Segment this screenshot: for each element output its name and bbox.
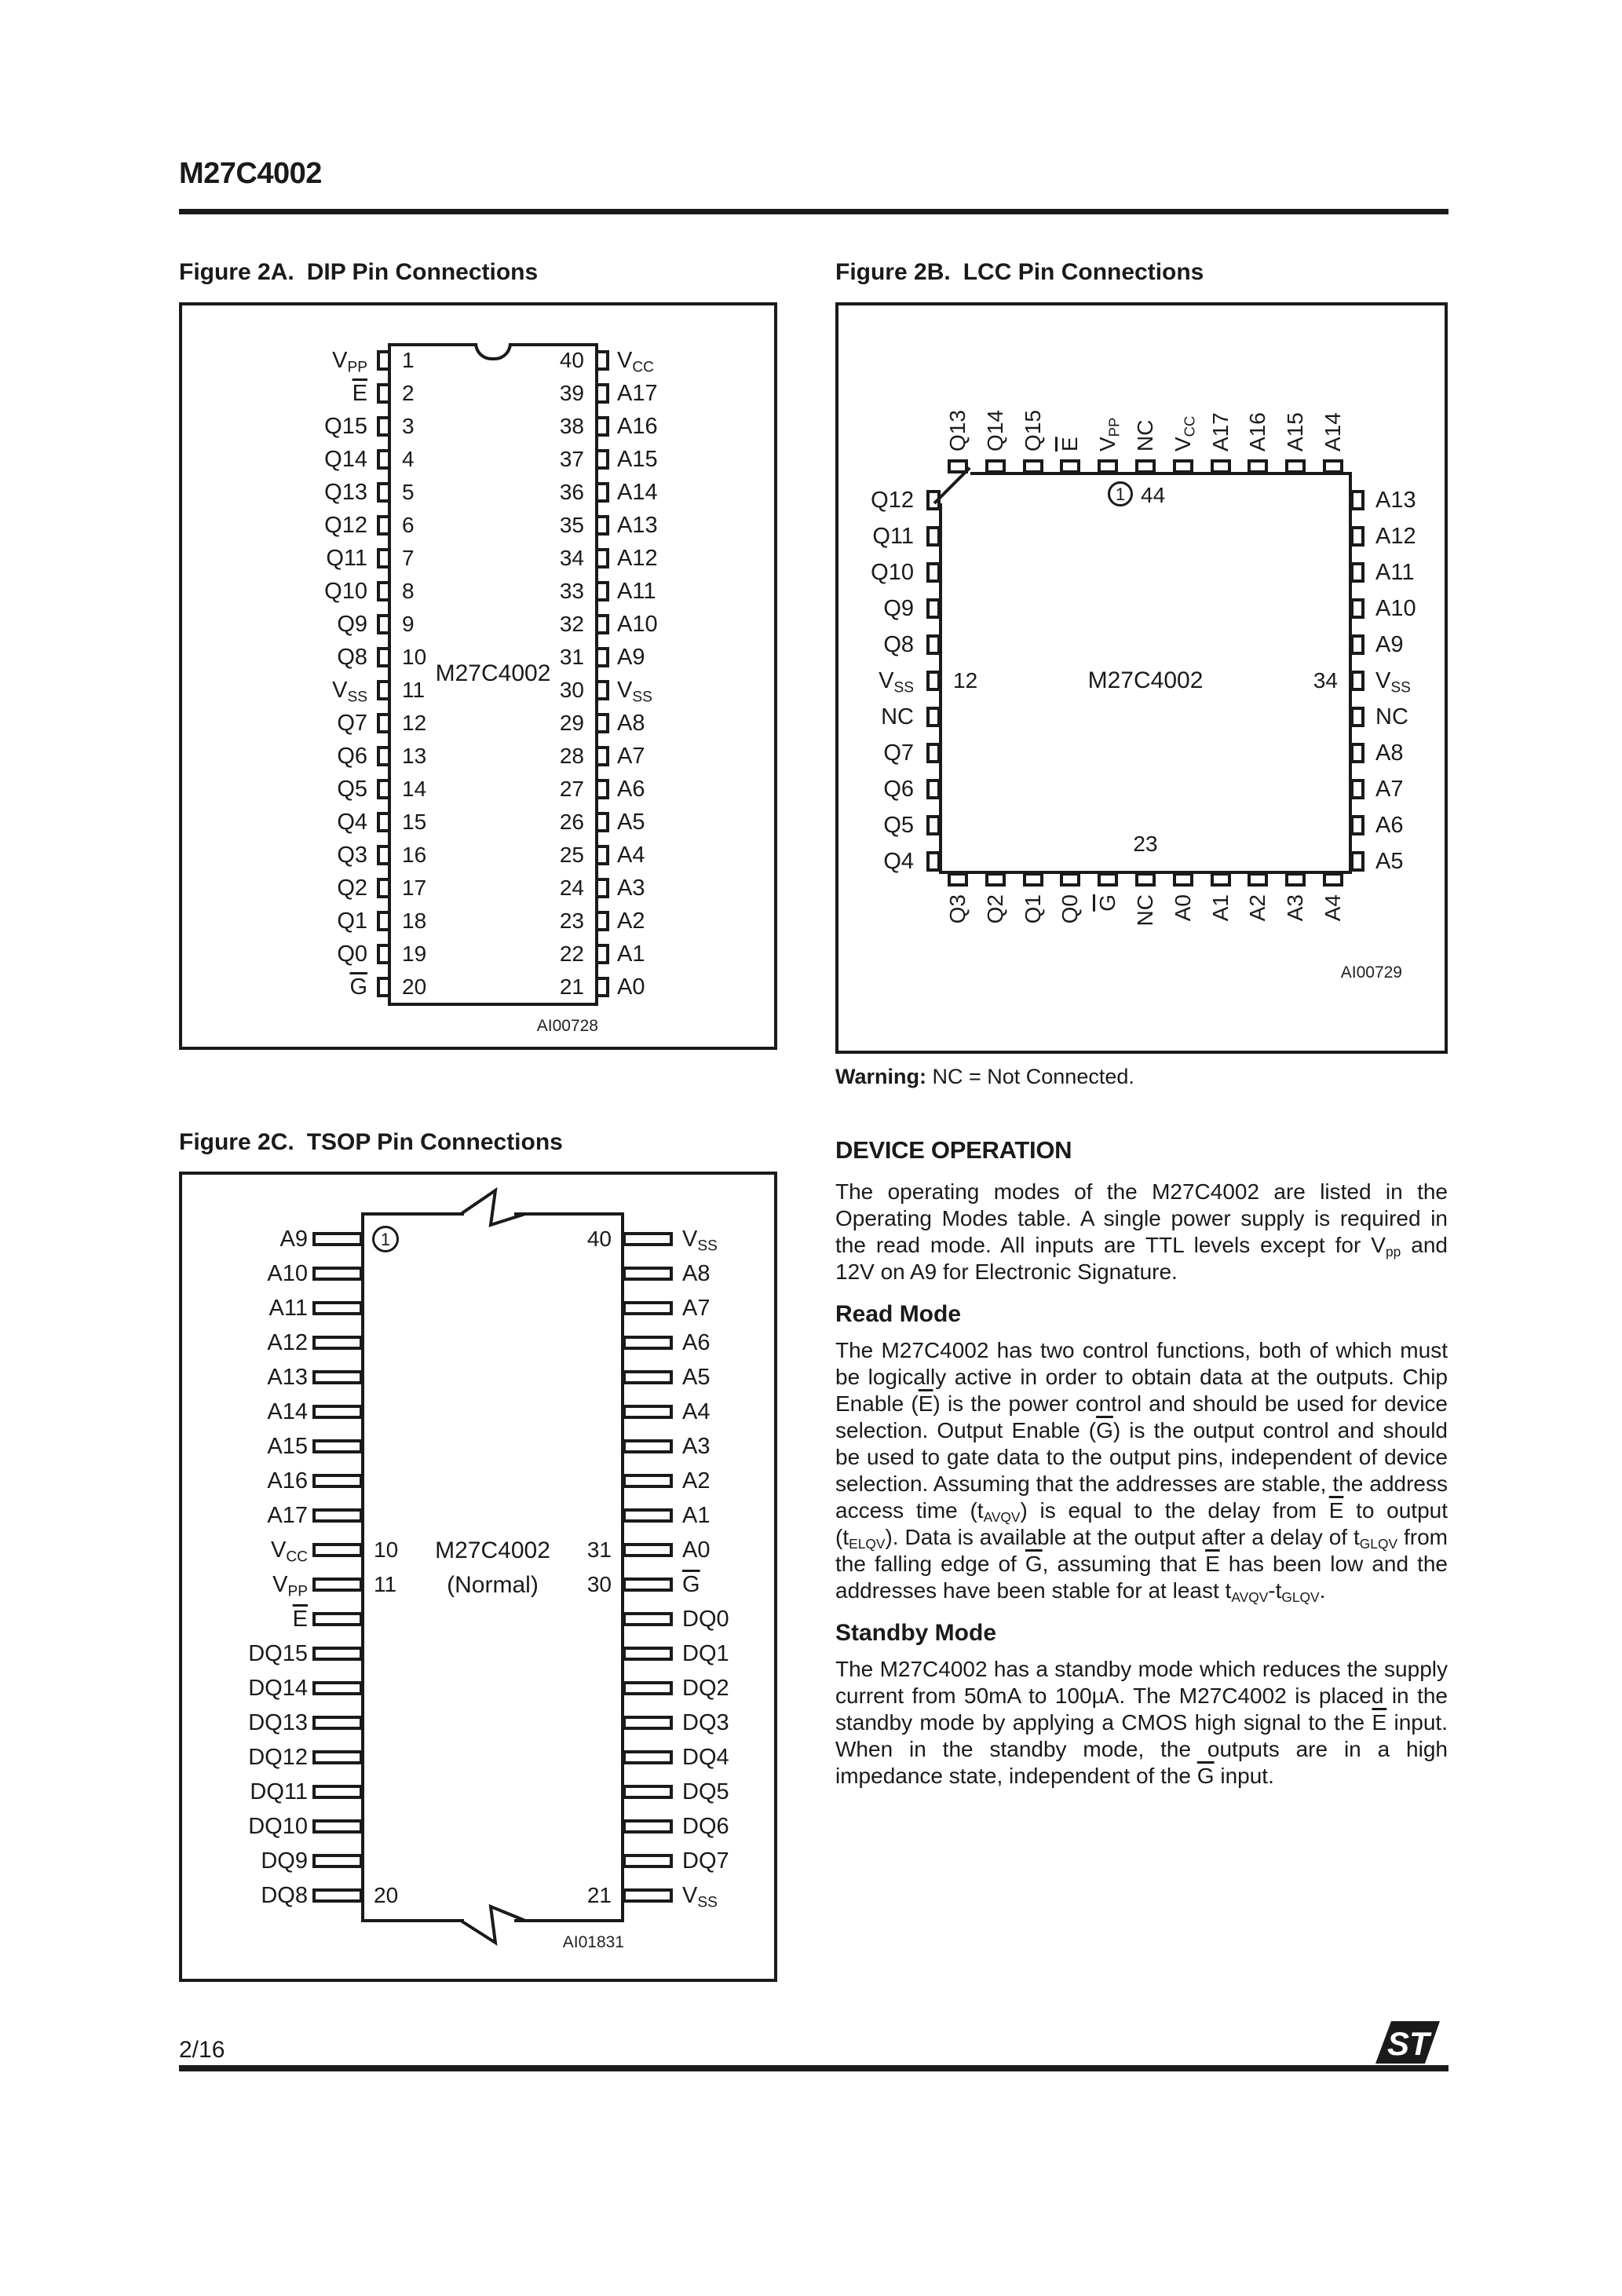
- pin-label: A8: [1375, 740, 1403, 766]
- pin-stub: [1350, 815, 1364, 835]
- figure-2a-caption: Figure 2A.DIP Pin Connections: [179, 259, 538, 286]
- pin-label: Q9: [188, 612, 367, 637]
- pin-stub: [377, 977, 391, 997]
- pin-number: 33: [524, 579, 584, 604]
- figure-2a-dip-diagram: VPP140VCCE239A17Q15338A16Q14437A15Q13536…: [179, 302, 777, 1050]
- pin1-marker: 1: [1108, 481, 1133, 506]
- pin-stub: [1285, 459, 1306, 473]
- pin-number: 1: [402, 348, 415, 373]
- page-number: 2/16: [179, 2037, 225, 2064]
- pin-stub: [312, 1785, 363, 1799]
- pin-label: NC: [845, 704, 914, 729]
- pin-label: DQ15: [188, 1641, 308, 1666]
- pin-label: A17: [188, 1503, 308, 1528]
- pin-stub: [926, 598, 941, 619]
- figure-2c-tsop-diagram: A9VSS140A10A8A11A7A12A6A13A5A14A4A15A3A1…: [179, 1172, 777, 1982]
- pin-stub: [1285, 872, 1306, 887]
- pin-label: Q0: [188, 941, 367, 967]
- pin-stub: [595, 614, 609, 634]
- pin-stub: [595, 515, 609, 536]
- pin-number: 23: [939, 832, 1352, 857]
- pin-number: 20: [402, 974, 426, 1000]
- pin-label: A2: [1248, 894, 1267, 981]
- pin-label: Q15: [188, 414, 367, 439]
- pin-number: 20: [374, 1883, 398, 1908]
- pin-number: 15: [402, 810, 426, 835]
- pin-label: Q11: [188, 546, 367, 571]
- pin-stub: [595, 977, 609, 997]
- pin-label: A15: [188, 1434, 308, 1459]
- pin-label: A14: [1324, 365, 1343, 452]
- pin-label: DQ1: [682, 1641, 729, 1666]
- pin-label: A15: [1286, 365, 1305, 452]
- pin-label: A4: [617, 843, 645, 868]
- pin-stub: [312, 1750, 363, 1764]
- pin-label: A3: [682, 1434, 710, 1459]
- pin-stub: [1248, 459, 1268, 473]
- tsop-chip-body: [361, 1212, 624, 1922]
- pin-label: DQ9: [188, 1848, 308, 1874]
- pin-stub: [377, 383, 391, 404]
- pin-label: DQ3: [682, 1710, 729, 1735]
- pin-number: 44: [1141, 483, 1165, 508]
- device-operation-heading: DEVICE OPERATION: [835, 1136, 1448, 1164]
- pin-number: 4: [402, 447, 415, 472]
- pin-number: 14: [402, 777, 426, 802]
- datasheet-page: M27C4002 Figure 2A.DIP Pin Connections F…: [0, 0, 1622, 2296]
- pin-stub: [312, 1854, 363, 1868]
- pin-label: Q10: [188, 579, 367, 604]
- pin-stub: [312, 1508, 363, 1523]
- pin-stub: [623, 1888, 673, 1903]
- pin-number: 32: [524, 612, 584, 637]
- pin-label: NC: [1136, 365, 1155, 452]
- pin-label: Q4: [845, 849, 914, 874]
- pin-label: VCC: [617, 348, 654, 373]
- pin-stub: [1350, 671, 1364, 691]
- pin-stub: [1135, 459, 1156, 473]
- pin-stub: [377, 548, 391, 569]
- pin-label: A6: [617, 777, 645, 802]
- pin-stub: [377, 515, 391, 536]
- pin-stub: [595, 449, 609, 470]
- pin-stub: [377, 614, 391, 634]
- pin-stub: [985, 872, 1006, 887]
- pin-stub: [595, 482, 609, 503]
- pin-stub: [377, 944, 391, 964]
- chip-label: M27C4002: [939, 667, 1352, 694]
- pin-stub: [1350, 743, 1364, 763]
- figure-code: AI00728: [388, 1017, 598, 1036]
- pin-stub: [595, 845, 609, 865]
- pin-label: DQ13: [188, 1710, 308, 1735]
- pin-stub: [1350, 526, 1364, 547]
- pin-stub: [1350, 634, 1364, 655]
- pin-label: A12: [188, 1330, 308, 1355]
- pin-label: A11: [188, 1296, 308, 1321]
- figure-code: AI00729: [1341, 963, 1402, 982]
- standby-mode-heading: Standby Mode: [835, 1620, 1448, 1647]
- pin-label: DQ0: [682, 1607, 729, 1632]
- pin-stub: [377, 779, 391, 799]
- pin-stub: [377, 416, 391, 437]
- pin-label: G: [188, 974, 367, 1000]
- pin-stub: [1173, 459, 1193, 473]
- pin-stub: [623, 1681, 673, 1695]
- figure-2b-caption-title: LCC Pin Connections: [963, 259, 1204, 285]
- pin-stub: [1098, 459, 1118, 473]
- pin-stub: [948, 872, 968, 887]
- pin-label: A5: [1375, 849, 1403, 874]
- pin-label: E: [1061, 365, 1080, 452]
- pin-label: A8: [682, 1261, 710, 1286]
- pin-stub: [377, 911, 391, 931]
- pin-stub: [595, 878, 609, 898]
- pin-number: 18: [402, 909, 426, 934]
- pin-label: A4: [682, 1399, 710, 1424]
- pin-stub: [377, 350, 391, 371]
- pin-stub: [312, 1647, 363, 1661]
- pin-number: 2: [402, 381, 415, 406]
- pin-stub: [595, 746, 609, 766]
- pin-label: Q7: [188, 711, 367, 736]
- pin-label: A16: [617, 414, 658, 439]
- pin-label: A12: [1375, 524, 1416, 549]
- pin-stub: [926, 851, 941, 872]
- st-logo-icon: ST: [1375, 2020, 1440, 2065]
- pin-number: 36: [524, 480, 584, 505]
- pin-label: DQ8: [188, 1883, 308, 1908]
- pin-number: 5: [402, 480, 415, 505]
- pin1-marker: 1: [372, 1226, 399, 1252]
- pin-label: Q5: [188, 777, 367, 802]
- pin-label: A7: [1375, 777, 1403, 802]
- pin-number: 3: [402, 414, 415, 439]
- pin-label: A1: [617, 941, 645, 967]
- pin-label: Q11: [845, 524, 914, 549]
- pin-stub: [312, 1267, 363, 1281]
- pin-label: A4: [1324, 894, 1343, 981]
- pin-stub: [1060, 872, 1080, 887]
- pin-number: 26: [524, 810, 584, 835]
- pin-label: Q1: [1024, 894, 1043, 981]
- pin-label: A11: [617, 579, 656, 604]
- pin-stub: [1023, 872, 1043, 887]
- pin-label: Q12: [845, 488, 914, 513]
- pin-stub: [1323, 459, 1343, 473]
- pin-stub: [623, 1474, 673, 1488]
- pin-stub: [1173, 872, 1193, 887]
- pin-stub: [1350, 707, 1364, 727]
- pin-label: A17: [617, 381, 658, 406]
- pin-number: 13: [402, 744, 426, 769]
- pin-label: A9: [188, 1227, 308, 1252]
- pin-label: VSS: [682, 1883, 718, 1908]
- pin-stub: [926, 815, 941, 835]
- pin-number: 8: [402, 579, 415, 604]
- pin-stub: [595, 350, 609, 371]
- pin-label: DQ5: [682, 1779, 729, 1804]
- pin-stub: [1350, 779, 1364, 799]
- pin-label: NC: [1136, 894, 1155, 981]
- standby-mode-paragraph: The M27C4002 has a standby mode which re…: [835, 1656, 1448, 1790]
- read-mode-heading: Read Mode: [835, 1301, 1448, 1328]
- pin-label: A9: [617, 645, 645, 670]
- pin-label: A13: [617, 513, 658, 538]
- pin-number: 37: [524, 447, 584, 472]
- pin-stub: [623, 1439, 673, 1453]
- pin-label: VSS: [1375, 668, 1411, 693]
- pin-stub: [312, 1405, 363, 1419]
- pin-stub: [1350, 598, 1364, 619]
- pin-label: A10: [188, 1261, 308, 1286]
- pin-label: A13: [188, 1365, 308, 1390]
- pin-label: A2: [617, 909, 645, 934]
- pin-label: DQ11: [188, 1779, 308, 1804]
- pin-number: 28: [524, 744, 584, 769]
- pin-label: Q3: [188, 843, 367, 868]
- device-operation-section: DEVICE OPERATION The operating modes of …: [835, 1136, 1448, 1797]
- pin-stub: [312, 1439, 363, 1453]
- pin-label: DQ10: [188, 1814, 308, 1839]
- pin-label: DQ7: [682, 1848, 729, 1874]
- pin-stub: [595, 944, 609, 964]
- chip-label: M27C4002: [361, 1537, 624, 1564]
- pin-label: G: [1098, 894, 1117, 981]
- pin-number: 24: [524, 876, 584, 901]
- pin-label: Q6: [188, 744, 367, 769]
- pin-stub: [312, 1474, 363, 1488]
- pin-stub: [1060, 459, 1080, 473]
- pin-label: Q2: [188, 876, 367, 901]
- pin-label: Q13: [948, 365, 967, 452]
- pin-number: 12: [402, 711, 426, 736]
- pin-label: VCC: [188, 1537, 308, 1563]
- pin-label: Q3: [948, 894, 967, 981]
- page-title: M27C4002: [179, 157, 322, 191]
- pin-stub: [1248, 872, 1268, 887]
- pin-stub: [595, 548, 609, 569]
- pin-stub: [312, 1370, 363, 1384]
- nc-warning: Warning: NC = Not Connected.: [835, 1065, 1134, 1089]
- pin-stub: [1211, 459, 1231, 473]
- pin-stub: [312, 1301, 363, 1315]
- pin-label: A16: [188, 1468, 308, 1493]
- pin-stub: [595, 581, 609, 601]
- pin-label: A11: [1375, 560, 1414, 585]
- pin-number: 7: [402, 546, 415, 571]
- pin-label: A0: [1174, 894, 1193, 981]
- pin-stub: [377, 647, 391, 667]
- pin-number: 27: [524, 777, 584, 802]
- chip-break-mark: [450, 1187, 536, 1238]
- pin-stub: [377, 845, 391, 865]
- pin-label: Q8: [845, 632, 914, 657]
- pin-stub: [377, 581, 391, 601]
- pin-number: 16: [402, 843, 426, 868]
- figure-2c-caption-title: TSOP Pin Connections: [307, 1129, 563, 1155]
- pin-stub: [377, 680, 391, 700]
- pin-label: A6: [682, 1330, 710, 1355]
- pin-label: A17: [1211, 365, 1230, 452]
- pin-stub: [312, 1819, 363, 1834]
- figure-2c-caption-label: Figure 2C.: [179, 1129, 294, 1155]
- pin-label: A3: [1286, 894, 1305, 981]
- pin-label: A2: [682, 1468, 710, 1493]
- pin-stub: [595, 812, 609, 832]
- pin-stub: [623, 1750, 673, 1764]
- pin-label: Q10: [845, 560, 914, 585]
- pin-number: 25: [524, 843, 584, 868]
- pin-number: 39: [524, 381, 584, 406]
- footer-rule: [179, 2065, 1448, 2071]
- pin-stub: [377, 746, 391, 766]
- pin-number: 38: [524, 414, 584, 439]
- pin-stub: [312, 1681, 363, 1695]
- pin-label: A13: [1375, 488, 1416, 513]
- pin-label: A8: [617, 711, 645, 736]
- pin-label: A9: [1375, 632, 1403, 657]
- pin-stub: [926, 634, 941, 655]
- pin-stub: [312, 1612, 363, 1626]
- pin-stub: [926, 562, 941, 583]
- pin-number: 34: [524, 546, 584, 571]
- pin-stub: [312, 1888, 363, 1903]
- pin-stub: [623, 1267, 673, 1281]
- pin-label: E: [188, 1607, 308, 1632]
- pin-label: Q4: [188, 810, 367, 835]
- pin-stub: [623, 1370, 673, 1384]
- pin-label: VCC: [1174, 365, 1193, 452]
- pin-stub: [623, 1405, 673, 1419]
- pin-number: 40: [552, 1227, 612, 1252]
- pin-label: A14: [188, 1399, 308, 1424]
- svg-text:ST: ST: [1387, 2025, 1432, 2062]
- figure-2a-caption-label: Figure 2A.: [179, 259, 294, 285]
- pin-stub: [985, 459, 1006, 473]
- pin-number: 9: [402, 612, 415, 637]
- pin-number: 40: [524, 348, 584, 373]
- pin-label: VPP: [188, 1572, 308, 1597]
- pin-label: A14: [617, 480, 658, 505]
- pin-stub: [623, 1336, 673, 1350]
- pin-label: A12: [617, 546, 658, 571]
- pin-label: VPP: [1098, 365, 1117, 452]
- pin-stub: [595, 383, 609, 404]
- pin-number: 6: [402, 513, 415, 538]
- pin-label: Q15: [1024, 365, 1043, 452]
- pin-stub: [926, 779, 941, 799]
- pin-label: DQ6: [682, 1814, 729, 1839]
- figure-2b-lcc-diagram: Q13Q3Q14Q2Q15Q1EQ0VPPGNCNCVCCA0A17A1A16A…: [835, 302, 1448, 1054]
- figure-2b-caption-label: Figure 2B.: [835, 259, 951, 285]
- chip-sublabel: (Normal): [361, 1572, 624, 1599]
- pin-stub: [1350, 562, 1364, 583]
- pin-label: G: [682, 1572, 700, 1597]
- pin-stub: [926, 671, 941, 691]
- st-logo: ST: [1375, 2020, 1440, 2069]
- pin-stub: [623, 1785, 673, 1799]
- pin-label: A10: [617, 612, 658, 637]
- pin-stub: [623, 1301, 673, 1315]
- pin-number: 19: [402, 941, 426, 967]
- pin-label: DQ2: [682, 1676, 729, 1701]
- pin-stub: [377, 713, 391, 733]
- pin-label: Q0: [1061, 894, 1080, 981]
- pin-stub: [595, 713, 609, 733]
- pin-label: A0: [617, 974, 645, 1000]
- pin-label: Q6: [845, 777, 914, 802]
- pin-label: Q5: [845, 813, 914, 838]
- header-rule: [179, 209, 1448, 214]
- pin-stub: [595, 647, 609, 667]
- pin-stub: [377, 878, 391, 898]
- pin-number: 22: [524, 941, 584, 967]
- nc-warning-label: Warning:: [835, 1065, 926, 1088]
- pin-label: VSS: [845, 668, 914, 693]
- pin-label: A10: [1375, 596, 1416, 621]
- pin-number: 35: [524, 513, 584, 538]
- pin-stub: [926, 743, 941, 763]
- pin-label: Q7: [845, 740, 914, 766]
- figure-2c-caption: Figure 2C.TSOP Pin Connections: [179, 1129, 563, 1156]
- pin-label: Q14: [986, 365, 1005, 452]
- pin-label: A1: [1211, 894, 1230, 981]
- pin-stub: [1098, 872, 1118, 887]
- pin-stub: [312, 1578, 363, 1592]
- pin-label: A7: [682, 1296, 710, 1321]
- pin-stub: [377, 812, 391, 832]
- pin-stub: [595, 416, 609, 437]
- pin-stub: [377, 449, 391, 470]
- pin-stub: [623, 1647, 673, 1661]
- pin-stub: [926, 707, 941, 727]
- pin-stub: [595, 911, 609, 931]
- chip-break-mark: [450, 1896, 536, 1946]
- pin-label: Q14: [188, 447, 367, 472]
- lcc-chamfer-mask: [937, 470, 970, 503]
- pin-number: 17: [402, 876, 426, 901]
- pin-stub: [1211, 872, 1231, 887]
- pin-stub: [312, 1232, 363, 1246]
- pin-label: DQ12: [188, 1745, 308, 1770]
- pin-label: Q8: [188, 645, 367, 670]
- pin-label: A16: [1248, 365, 1267, 452]
- pin-label: A0: [682, 1537, 710, 1563]
- pin-stub: [623, 1819, 673, 1834]
- chip-label: M27C4002: [388, 660, 598, 687]
- pin-stub: [623, 1716, 673, 1730]
- pin-label: DQ14: [188, 1676, 308, 1701]
- pin-number: 29: [524, 711, 584, 736]
- pin-label: A5: [682, 1365, 710, 1390]
- pin-label: A1: [682, 1503, 710, 1528]
- pin-number: 23: [524, 909, 584, 934]
- pin-label: VSS: [188, 678, 367, 703]
- pin-label: VSS: [617, 678, 652, 703]
- pin-stub: [926, 526, 941, 547]
- pin-stub: [623, 1854, 673, 1868]
- pin-number: 21: [552, 1883, 612, 1908]
- pin-label: VPP: [188, 348, 367, 373]
- pin-stub: [623, 1578, 673, 1592]
- pin-stub: [1135, 872, 1156, 887]
- pin-label: A6: [1375, 813, 1403, 838]
- pin-stub: [623, 1232, 673, 1246]
- pin-label: Q1: [188, 909, 367, 934]
- pin-label: NC: [1375, 704, 1408, 729]
- pin-stub: [1323, 872, 1343, 887]
